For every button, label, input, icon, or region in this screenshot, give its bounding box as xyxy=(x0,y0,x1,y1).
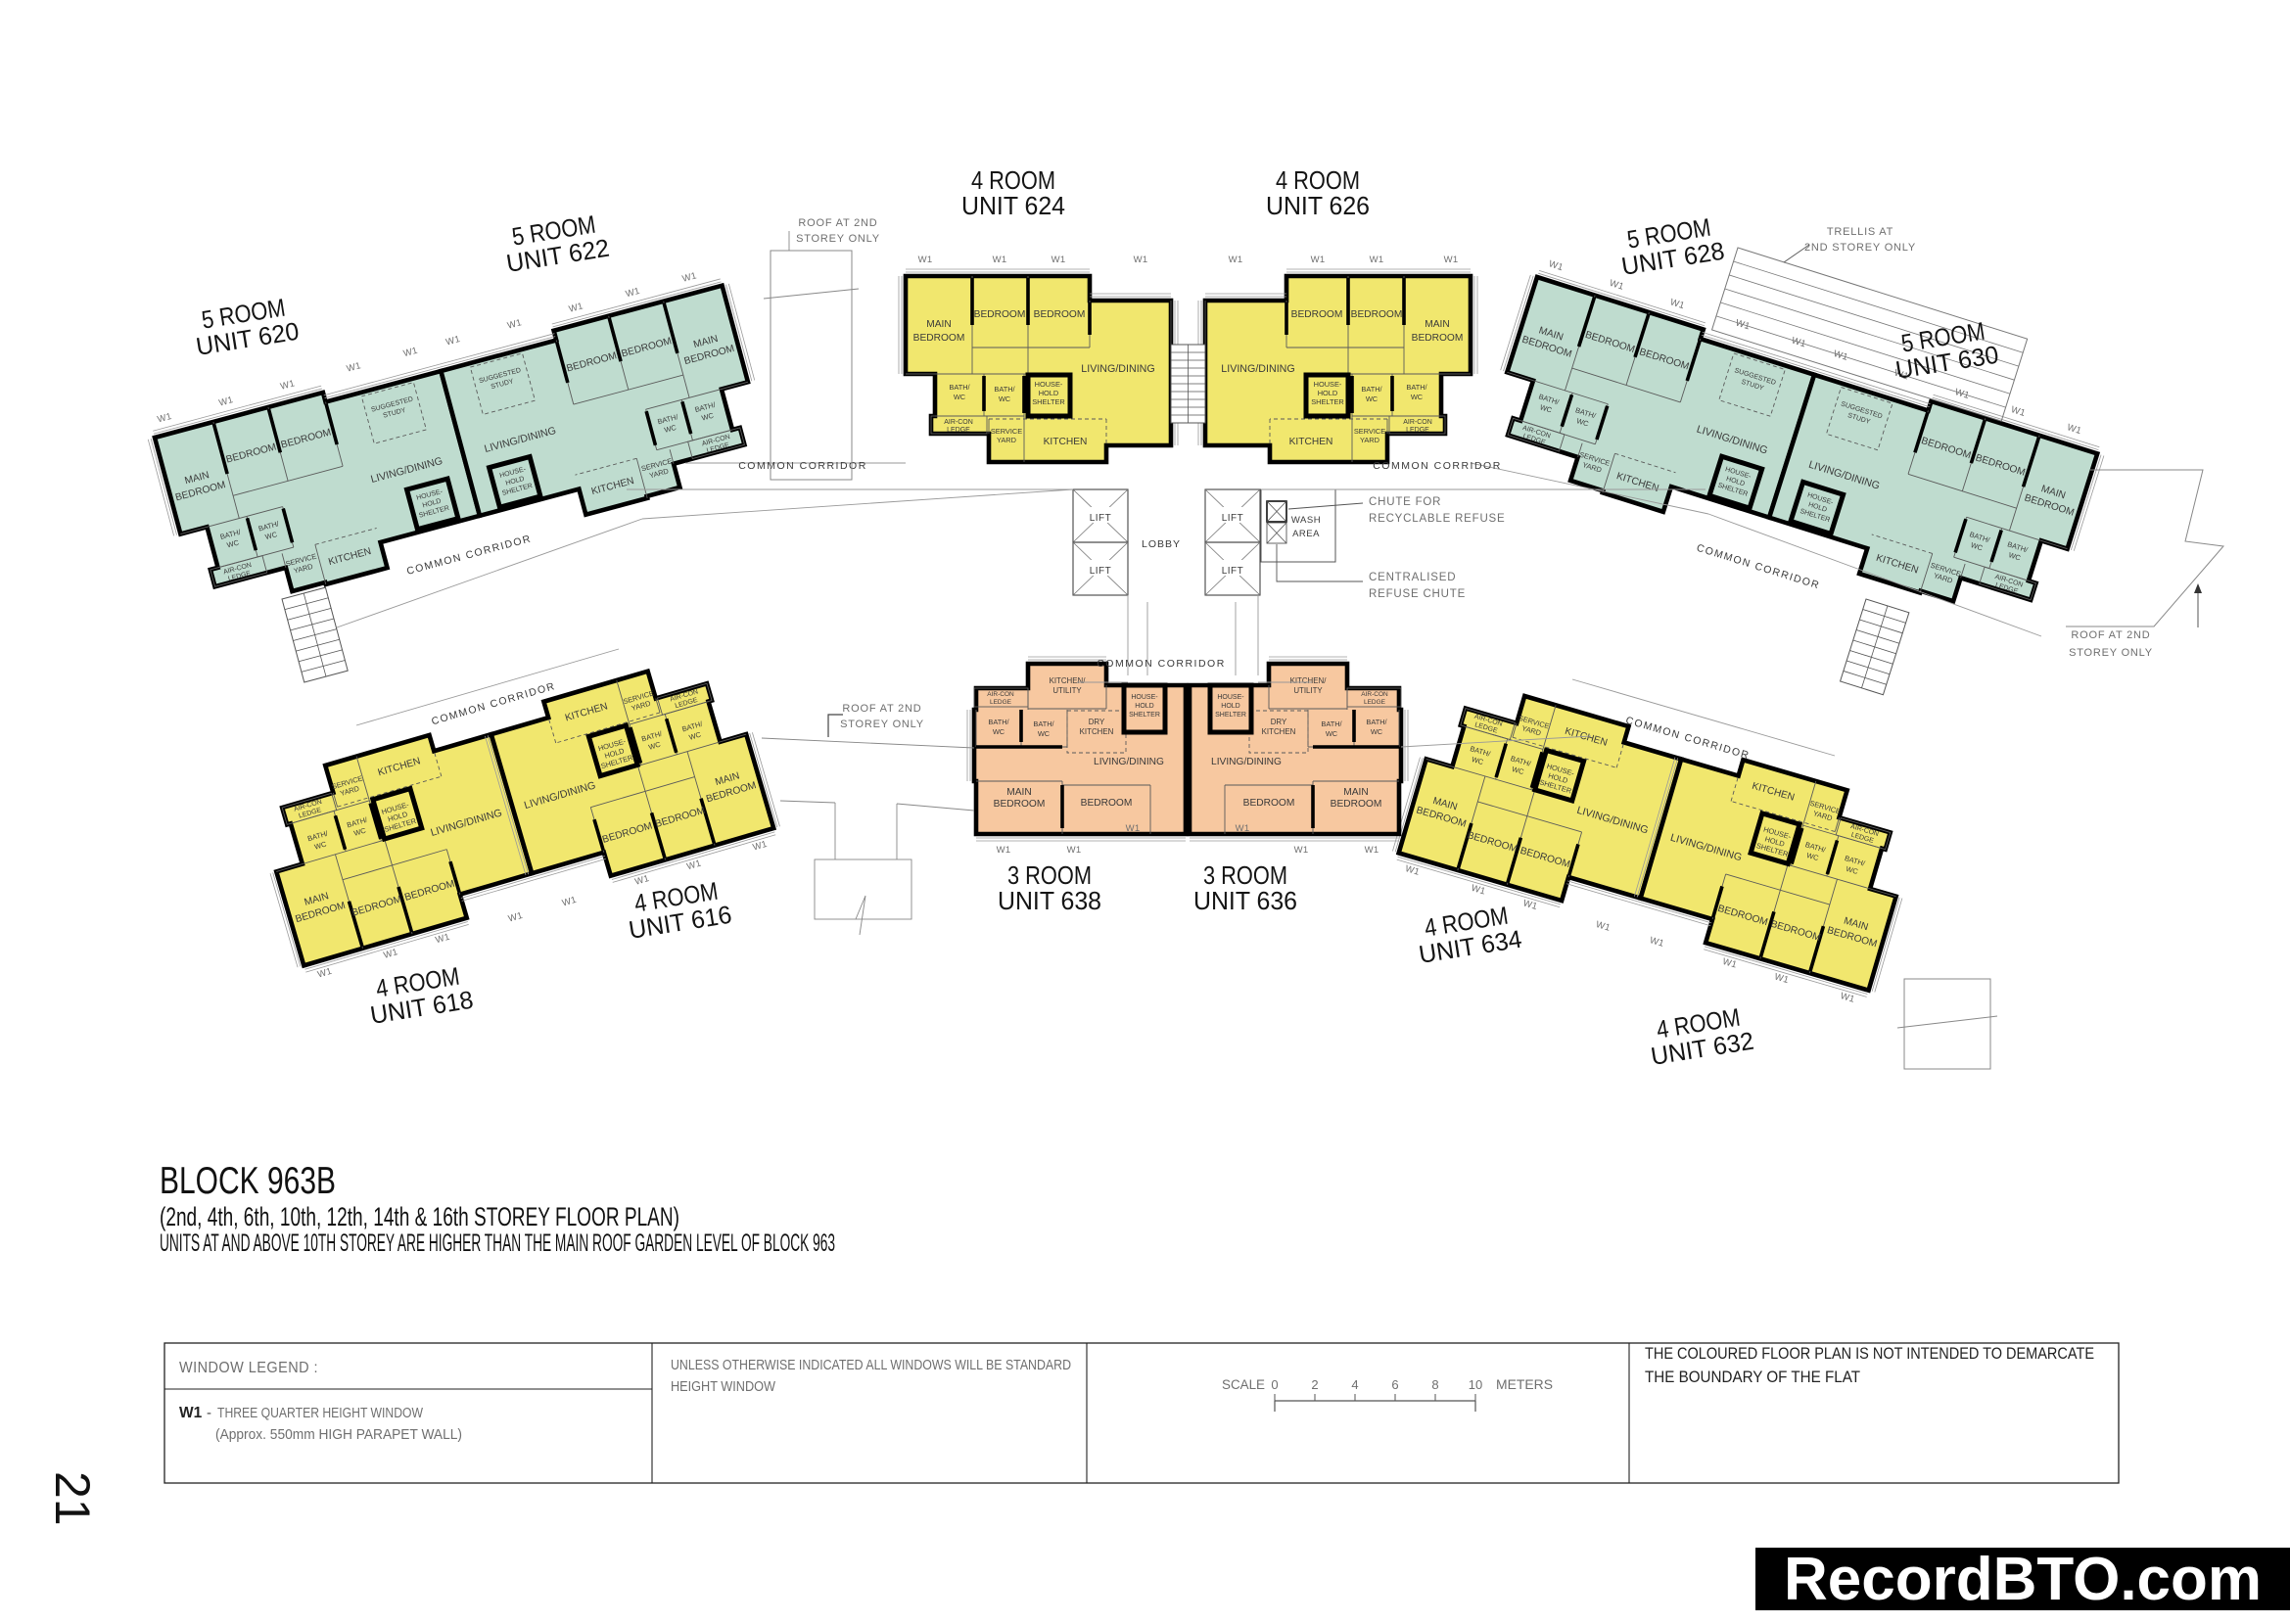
svg-text:UNIT 638: UNIT 638 xyxy=(998,888,1101,915)
svg-text:W1: W1 xyxy=(1444,255,1459,265)
svg-text:W1: W1 xyxy=(179,1405,203,1421)
svg-text:SCALE: SCALE xyxy=(1222,1377,1265,1392)
svg-text:COMMON CORRIDOR: COMMON CORRIDOR xyxy=(738,460,867,472)
svg-text:LEDGE: LEDGE xyxy=(1364,699,1386,706)
svg-text:BEDROOM: BEDROOM xyxy=(974,309,1026,320)
svg-text:W1: W1 xyxy=(1229,255,1243,265)
svg-text:BEDROOM: BEDROOM xyxy=(1331,799,1382,810)
svg-text:HOUSE-: HOUSE- xyxy=(1217,694,1244,701)
svg-text:SHELTER: SHELTER xyxy=(1215,712,1246,719)
svg-text:COMMON CORRIDOR: COMMON CORRIDOR xyxy=(1097,658,1226,670)
svg-text:MAIN: MAIN xyxy=(1425,319,1449,330)
svg-text:WC: WC xyxy=(1326,729,1338,738)
svg-text:MAIN: MAIN xyxy=(1343,787,1368,798)
svg-text:YARD: YARD xyxy=(1360,436,1379,444)
svg-text:SERVICE: SERVICE xyxy=(991,427,1022,436)
svg-text:SHELTER: SHELTER xyxy=(1129,712,1160,719)
svg-text:W1: W1 xyxy=(997,845,1011,856)
svg-text:W1: W1 xyxy=(1134,255,1148,265)
svg-text:UTILITY: UTILITY xyxy=(1293,686,1323,695)
svg-text:W1: W1 xyxy=(1126,823,1141,834)
svg-text:UNIT 626: UNIT 626 xyxy=(1266,193,1370,220)
svg-text:STOREY ONLY: STOREY ONLY xyxy=(840,719,924,730)
svg-text:DRY: DRY xyxy=(1271,718,1287,726)
svg-text:4 ROOM: 4 ROOM xyxy=(1276,167,1360,195)
svg-text:AIR-CON: AIR-CON xyxy=(1361,691,1388,698)
svg-text:LIFT: LIFT xyxy=(1222,566,1244,577)
svg-text:WINDOW LEGEND :: WINDOW LEGEND : xyxy=(179,1360,318,1376)
svg-text:(2nd, 4th, 6th, 10th, 12th, 14: (2nd, 4th, 6th, 10th, 12th, 14th & 16th … xyxy=(160,1202,679,1231)
svg-text:RecordBTO.com: RecordBTO.com xyxy=(1784,1546,2262,1613)
svg-text:(Approx. 550mm HIGH PARAPET WA: (Approx. 550mm HIGH PARAPET WALL) xyxy=(215,1426,462,1443)
svg-text:3 ROOM: 3 ROOM xyxy=(1007,862,1092,890)
svg-text:BEDROOM: BEDROOM xyxy=(1081,798,1133,809)
svg-text:SERVICE: SERVICE xyxy=(1354,427,1385,436)
svg-text:AIR-CON: AIR-CON xyxy=(987,691,1014,698)
svg-text:BATH/: BATH/ xyxy=(1406,383,1427,392)
svg-text:THE COLOURED FLOOR PLAN IS NOT: THE COLOURED FLOOR PLAN IS NOT INTENDED … xyxy=(1645,1345,2094,1363)
svg-text:HOUSE-: HOUSE- xyxy=(1131,694,1158,701)
svg-text:KITCHEN/: KITCHEN/ xyxy=(1050,676,1087,685)
svg-text:BATH/: BATH/ xyxy=(1033,719,1054,728)
svg-text:WC: WC xyxy=(1038,729,1051,738)
svg-text:WC: WC xyxy=(954,393,966,401)
svg-text:BATH/: BATH/ xyxy=(1366,718,1387,726)
svg-text:W1: W1 xyxy=(993,255,1007,265)
svg-text:UTILITY: UTILITY xyxy=(1052,686,1082,695)
svg-text:W1: W1 xyxy=(1370,255,1384,265)
svg-text:COMMON CORRIDOR: COMMON CORRIDOR xyxy=(1373,460,1502,472)
svg-text:AIR-CON: AIR-CON xyxy=(944,419,973,426)
svg-text:BEDROOM: BEDROOM xyxy=(1351,309,1403,320)
svg-text:ROOF AT 2ND: ROOF AT 2ND xyxy=(798,217,877,229)
svg-text:CHUTE FOR: CHUTE FOR xyxy=(1369,496,1441,508)
svg-text:2: 2 xyxy=(1311,1377,1318,1392)
svg-text:W1: W1 xyxy=(1236,823,1250,834)
svg-text:LIVING/DINING: LIVING/DINING xyxy=(1081,363,1154,375)
svg-text:BATH/: BATH/ xyxy=(988,718,1009,726)
svg-text:WC: WC xyxy=(1371,727,1383,736)
svg-text:BATH/: BATH/ xyxy=(1321,719,1342,728)
svg-text:BEDROOM: BEDROOM xyxy=(994,799,1046,810)
svg-text:W1: W1 xyxy=(1067,845,1082,856)
svg-text:THREE QUARTER HEIGHT WINDOW: THREE QUARTER HEIGHT WINDOW xyxy=(217,1405,424,1421)
svg-text:WC: WC xyxy=(1366,394,1379,403)
svg-text:AIR-CON: AIR-CON xyxy=(1403,419,1432,426)
svg-text:SHELTER: SHELTER xyxy=(1311,397,1344,406)
svg-text:HOLD: HOLD xyxy=(1135,703,1153,710)
svg-text:DRY: DRY xyxy=(1089,718,1105,726)
svg-text:WC: WC xyxy=(1411,393,1424,401)
svg-text:MAIN: MAIN xyxy=(926,319,951,330)
svg-text:METERS: METERS xyxy=(1496,1377,1553,1392)
svg-text:LEDGE: LEDGE xyxy=(1406,427,1429,434)
svg-text:W1: W1 xyxy=(1311,255,1326,265)
svg-text:3 ROOM: 3 ROOM xyxy=(1203,862,1287,890)
svg-text:HOLD: HOLD xyxy=(1318,389,1338,397)
svg-text:KITCHEN: KITCHEN xyxy=(1080,727,1114,736)
svg-text:-: - xyxy=(207,1405,211,1421)
svg-text:CENTRALISED: CENTRALISED xyxy=(1369,572,1456,583)
svg-text:21: 21 xyxy=(45,1471,100,1526)
svg-text:AREA: AREA xyxy=(1292,529,1320,539)
svg-text:LEDGE: LEDGE xyxy=(947,427,970,434)
svg-text:4 ROOM: 4 ROOM xyxy=(971,167,1055,195)
svg-text:8: 8 xyxy=(1431,1377,1438,1392)
svg-text:ROOF AT 2ND: ROOF AT 2ND xyxy=(842,703,921,715)
svg-text:LIFT: LIFT xyxy=(1090,566,1112,577)
svg-text:UNIT 624: UNIT 624 xyxy=(961,193,1065,220)
svg-text:STOREY ONLY: STOREY ONLY xyxy=(2069,647,2153,659)
svg-text:BEDROOM: BEDROOM xyxy=(1034,309,1086,320)
svg-text:HOUSE-: HOUSE- xyxy=(1314,380,1342,389)
svg-text:BEDROOM: BEDROOM xyxy=(913,333,965,344)
svg-text:HOLD: HOLD xyxy=(1039,389,1059,397)
svg-text:LIVING/DINING: LIVING/DINING xyxy=(1094,757,1164,767)
svg-text:TRELLIS AT: TRELLIS AT xyxy=(1827,226,1893,238)
svg-text:WC: WC xyxy=(999,394,1011,403)
svg-text:UNIT 636: UNIT 636 xyxy=(1193,888,1297,915)
svg-text:KITCHEN: KITCHEN xyxy=(1262,727,1296,736)
svg-text:W1: W1 xyxy=(1294,845,1309,856)
svg-text:KITCHEN: KITCHEN xyxy=(1289,437,1333,447)
svg-text:W1: W1 xyxy=(918,255,933,265)
svg-text:YARD: YARD xyxy=(997,436,1016,444)
svg-text:LIVING/DINING: LIVING/DINING xyxy=(1211,757,1282,767)
svg-text:SHELTER: SHELTER xyxy=(1032,397,1065,406)
svg-text:2ND STOREY ONLY: 2ND STOREY ONLY xyxy=(1804,242,1916,254)
svg-text:W1: W1 xyxy=(1052,255,1066,265)
svg-text:THE BOUNDARY OF THE FLAT: THE BOUNDARY OF THE FLAT xyxy=(1645,1369,1860,1386)
svg-text:BEDROOM: BEDROOM xyxy=(1243,798,1295,809)
svg-text:LIFT: LIFT xyxy=(1090,513,1112,524)
svg-text:UNLESS OTHERWISE INDICATED ALL: UNLESS OTHERWISE INDICATED ALL WINDOWS W… xyxy=(671,1357,1071,1373)
svg-text:BEDROOM: BEDROOM xyxy=(1291,309,1343,320)
svg-text:LIFT: LIFT xyxy=(1222,513,1244,524)
svg-text:0: 0 xyxy=(1271,1377,1278,1392)
svg-text:KITCHEN/: KITCHEN/ xyxy=(1290,676,1328,685)
svg-text:BATH/: BATH/ xyxy=(949,383,970,392)
svg-text:W1: W1 xyxy=(1365,845,1379,856)
svg-text:LIVING/DINING: LIVING/DINING xyxy=(1221,363,1294,375)
svg-text:LEDGE: LEDGE xyxy=(990,699,1012,706)
svg-text:BATH/: BATH/ xyxy=(1361,385,1382,394)
svg-text:6: 6 xyxy=(1391,1377,1398,1392)
svg-text:MAIN: MAIN xyxy=(1006,787,1031,798)
svg-text:UNITS AT AND ABOVE 10TH STOREY: UNITS AT AND ABOVE 10TH STOREY ARE HIGHE… xyxy=(160,1230,835,1257)
svg-text:RECYCLABLE REFUSE: RECYCLABLE REFUSE xyxy=(1369,513,1506,525)
svg-text:KITCHEN: KITCHEN xyxy=(1044,437,1088,447)
svg-text:BATH/: BATH/ xyxy=(994,385,1015,394)
svg-text:WASH: WASH xyxy=(1291,515,1321,526)
svg-text:HOUSE-: HOUSE- xyxy=(1035,380,1063,389)
svg-text:10: 10 xyxy=(1469,1377,1482,1392)
svg-text:ROOF AT 2ND: ROOF AT 2ND xyxy=(2071,629,2150,641)
svg-text:BLOCK 963B: BLOCK 963B xyxy=(160,1160,336,1202)
svg-text:REFUSE CHUTE: REFUSE CHUTE xyxy=(1369,588,1466,600)
svg-text:4: 4 xyxy=(1351,1377,1358,1392)
svg-text:HOLD: HOLD xyxy=(1221,703,1239,710)
svg-text:HEIGHT WINDOW: HEIGHT WINDOW xyxy=(671,1378,776,1395)
svg-text:BEDROOM: BEDROOM xyxy=(1412,333,1464,344)
svg-text:STOREY ONLY: STOREY ONLY xyxy=(796,233,880,245)
svg-text:WC: WC xyxy=(993,727,1005,736)
svg-text:LOBBY: LOBBY xyxy=(1142,538,1181,550)
